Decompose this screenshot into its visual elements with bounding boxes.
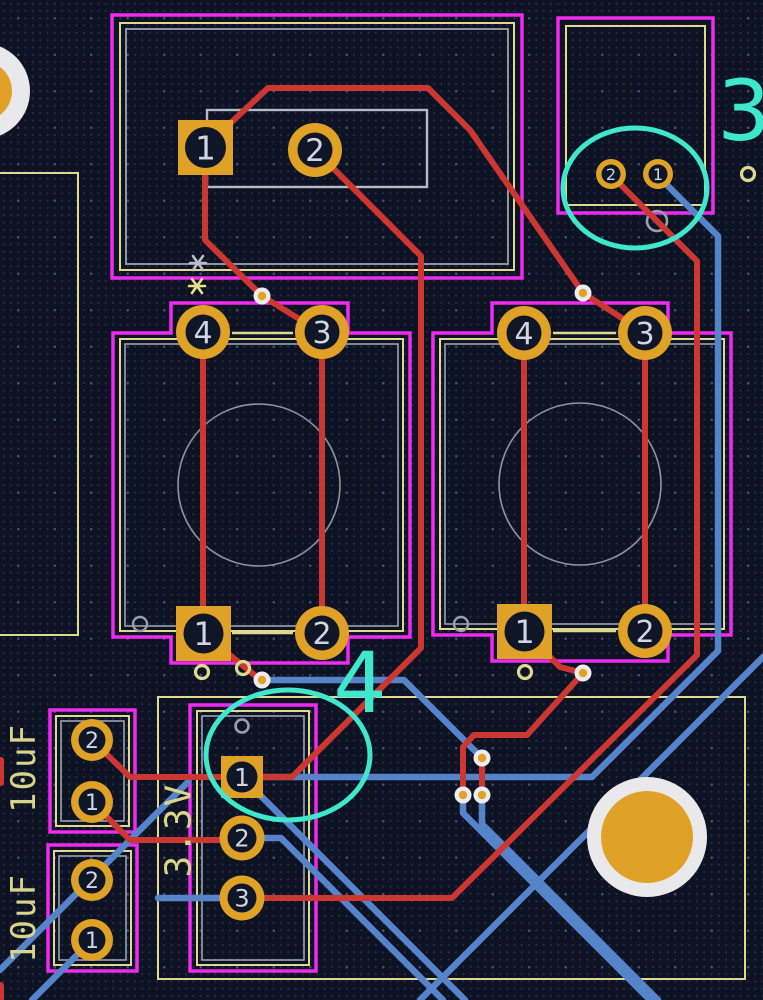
pad-header-3[interactable]: 3 — [220, 876, 265, 921]
pad-sw-left-3[interactable]: 3 — [295, 305, 349, 359]
via — [254, 672, 271, 689]
pad-number: 3 — [312, 316, 331, 351]
pad-number: 3 — [234, 885, 249, 913]
mounting-hole-bottom-right[interactable] — [587, 777, 707, 897]
courtyard-outline — [433, 303, 731, 661]
footprint-switch-left[interactable] — [113, 303, 410, 663]
pad-number: 1 — [85, 791, 99, 816]
mounting-hole-top-left[interactable] — [0, 43, 30, 139]
pad-sw-right-1[interactable]: 1 — [497, 604, 552, 659]
via — [474, 750, 491, 767]
annotation-label-4[interactable]: 4 — [333, 634, 386, 732]
fab-ring — [742, 168, 755, 181]
pcb-editor-canvas[interactable]: 1 2 2 1 4 3 1 2 4 3 1 — [0, 0, 763, 1000]
pad-header-2[interactable]: 2 — [220, 816, 265, 861]
pad-number: 4 — [514, 317, 533, 352]
silk-asterisk-gray — [190, 256, 206, 270]
pad-sw-left-4[interactable]: 4 — [176, 305, 230, 359]
silk-asterisk-yellow — [189, 279, 205, 293]
pad-number: 2 — [305, 133, 325, 169]
fab-rect-left — [0, 173, 78, 635]
pcb-layers: 1 2 2 1 4 3 1 2 4 3 1 — [0, 0, 763, 1000]
pad-cap-top-1[interactable]: 1 — [71, 781, 113, 823]
footprint-switch-right[interactable] — [433, 303, 731, 661]
silk-outline — [445, 344, 719, 624]
pad-tl-conn-2[interactable]: 2 — [288, 123, 342, 177]
pad-sw-right-2[interactable]: 2 — [618, 604, 672, 658]
silk-label-cap-bottom[interactable]: 10uF — [4, 873, 44, 963]
annotation-circle-top-right[interactable] — [563, 128, 707, 248]
pad-header-1[interactable]: 1 — [221, 756, 263, 798]
pad-cap-bottom-2[interactable]: 2 — [71, 859, 113, 901]
pad-number: 1 — [195, 128, 216, 167]
silk-ring — [133, 617, 147, 631]
silk-outline — [125, 344, 398, 626]
trace-blue-header1-diag[interactable] — [242, 777, 465, 1000]
pad-number: 2 — [234, 825, 249, 853]
fab-outline — [120, 339, 403, 631]
via — [575, 665, 592, 682]
pad-number: 2 — [606, 165, 616, 184]
via — [474, 787, 491, 804]
pad-number: 1 — [193, 615, 213, 653]
trace-blue-header2[interactable] — [243, 838, 443, 1000]
pad-tr-conn-2[interactable]: 2 — [596, 159, 626, 189]
hole-gold — [601, 791, 693, 883]
pad-number: 1 — [514, 613, 534, 651]
pad-sw-left-1[interactable]: 1 — [176, 606, 231, 661]
pad-number: 2 — [635, 615, 654, 650]
fab-outline — [566, 26, 705, 205]
pad-sw-right-4[interactable]: 4 — [497, 306, 551, 360]
courtyard-outline — [113, 303, 410, 663]
pad-tl-conn-1[interactable]: 1 — [178, 120, 233, 175]
via — [455, 787, 472, 804]
fab-ring — [519, 666, 532, 679]
via — [254, 288, 271, 305]
pad-number: 2 — [85, 869, 99, 894]
pad-number: 1 — [234, 763, 250, 792]
pad-cap-bottom-1[interactable]: 1 — [71, 919, 113, 961]
pad-tr-conn-1[interactable]: 1 — [643, 159, 673, 189]
pad-cap-top-2[interactable]: 2 — [71, 719, 113, 761]
pad-number: 3 — [635, 317, 654, 352]
pad-number: 4 — [193, 316, 212, 351]
pad-sw-right-3[interactable]: 3 — [618, 306, 672, 360]
courtyard-outline — [558, 18, 713, 213]
fab-ring — [196, 666, 209, 679]
fab-outline — [440, 339, 724, 629]
annotation-label-3[interactable]: 3 — [717, 62, 763, 160]
pad-number: 2 — [312, 617, 331, 652]
silk-label-rail[interactable]: 3.3V — [159, 783, 200, 878]
pad-number: 2 — [85, 729, 99, 754]
silk-pin1-circle — [236, 720, 249, 733]
pad-number: 1 — [653, 165, 663, 184]
pad-number: 1 — [85, 929, 99, 954]
via — [575, 285, 592, 302]
silk-label-cap-top[interactable]: 10uF — [4, 723, 44, 813]
